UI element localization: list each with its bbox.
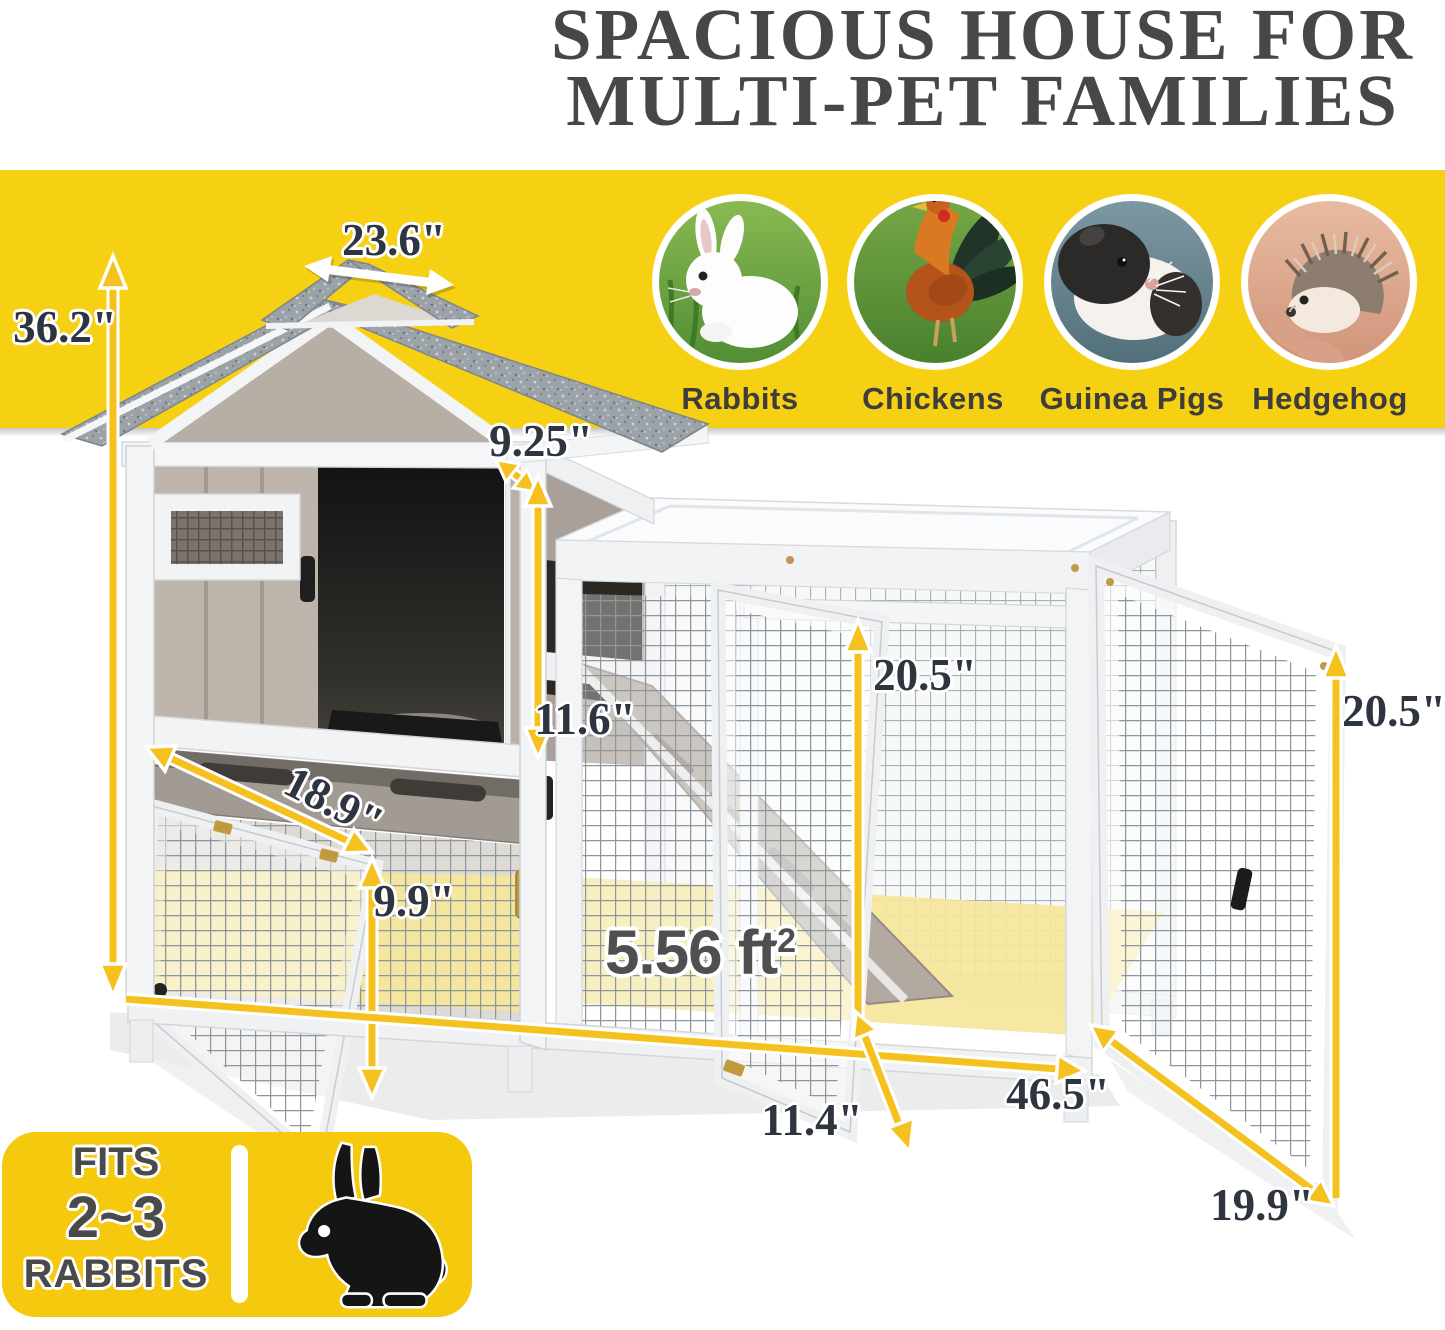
animal-label-hedgehog: Hedgehog bbox=[1252, 381, 1408, 417]
badge-divider bbox=[231, 1145, 248, 1303]
house-window bbox=[153, 494, 300, 580]
dim-side-door-width: 19.9" bbox=[1210, 1179, 1314, 1231]
rabbit-icon bbox=[256, 1138, 461, 1310]
capacity-badge: FITS 2~3 RABBITS bbox=[2, 1132, 472, 1317]
badge-line-fits: FITS bbox=[16, 1140, 216, 1185]
floor-area-label: 5.56 ft2 bbox=[605, 918, 795, 989]
floor-area-sup: 2 bbox=[777, 922, 795, 960]
left-door-open bbox=[140, 806, 376, 1166]
dim-total-height: 36.2" bbox=[13, 301, 117, 353]
product-infographic: SPACIOUS HOUSE FOR MULTI-PET FAMILIES Ra… bbox=[0, 0, 1445, 1330]
badge-line-count: 2~3 bbox=[16, 1184, 216, 1251]
dim-run-inner-height: 20.5" bbox=[873, 649, 977, 701]
hedgehog-photo bbox=[1241, 194, 1417, 373]
page-title: SPACIOUS HOUSE FOR MULTI-PET FAMILIES bbox=[523, 2, 1443, 134]
dim-total-length: 46.5" bbox=[1006, 1068, 1110, 1120]
dim-side-door-height: 20.5" bbox=[1342, 685, 1445, 737]
chicken-photo bbox=[847, 174, 1028, 370]
dim-side-opening-depth: 9.25" bbox=[489, 415, 593, 467]
dim-lower-height: 9.9" bbox=[373, 875, 454, 927]
dim-roof-width: 23.6" bbox=[342, 214, 446, 266]
badge-line-rabbits: RABBITS bbox=[16, 1252, 216, 1297]
dim-house-door-height: 11.6" bbox=[534, 693, 635, 745]
animal-label-chickens: Chickens bbox=[862, 381, 1004, 417]
arrow-total-height bbox=[100, 256, 126, 996]
dim-front-door-width: 11.4" bbox=[761, 1094, 862, 1146]
animal-label-rabbits: Rabbits bbox=[681, 381, 798, 417]
rabbit-photo bbox=[652, 194, 828, 370]
right-door-open bbox=[1096, 566, 1338, 1206]
title-line-2: MULTI-PET FAMILIES bbox=[523, 68, 1443, 134]
title-line-1: SPACIOUS HOUSE FOR bbox=[523, 2, 1443, 68]
animal-photos bbox=[652, 174, 1417, 373]
animal-label-guinea-pigs: Guinea Pigs bbox=[1040, 381, 1225, 417]
guinea-pig-photo bbox=[1044, 194, 1220, 370]
floor-area-value: 5.56 ft bbox=[605, 919, 777, 988]
hutch-illustration bbox=[0, 0, 1445, 1330]
